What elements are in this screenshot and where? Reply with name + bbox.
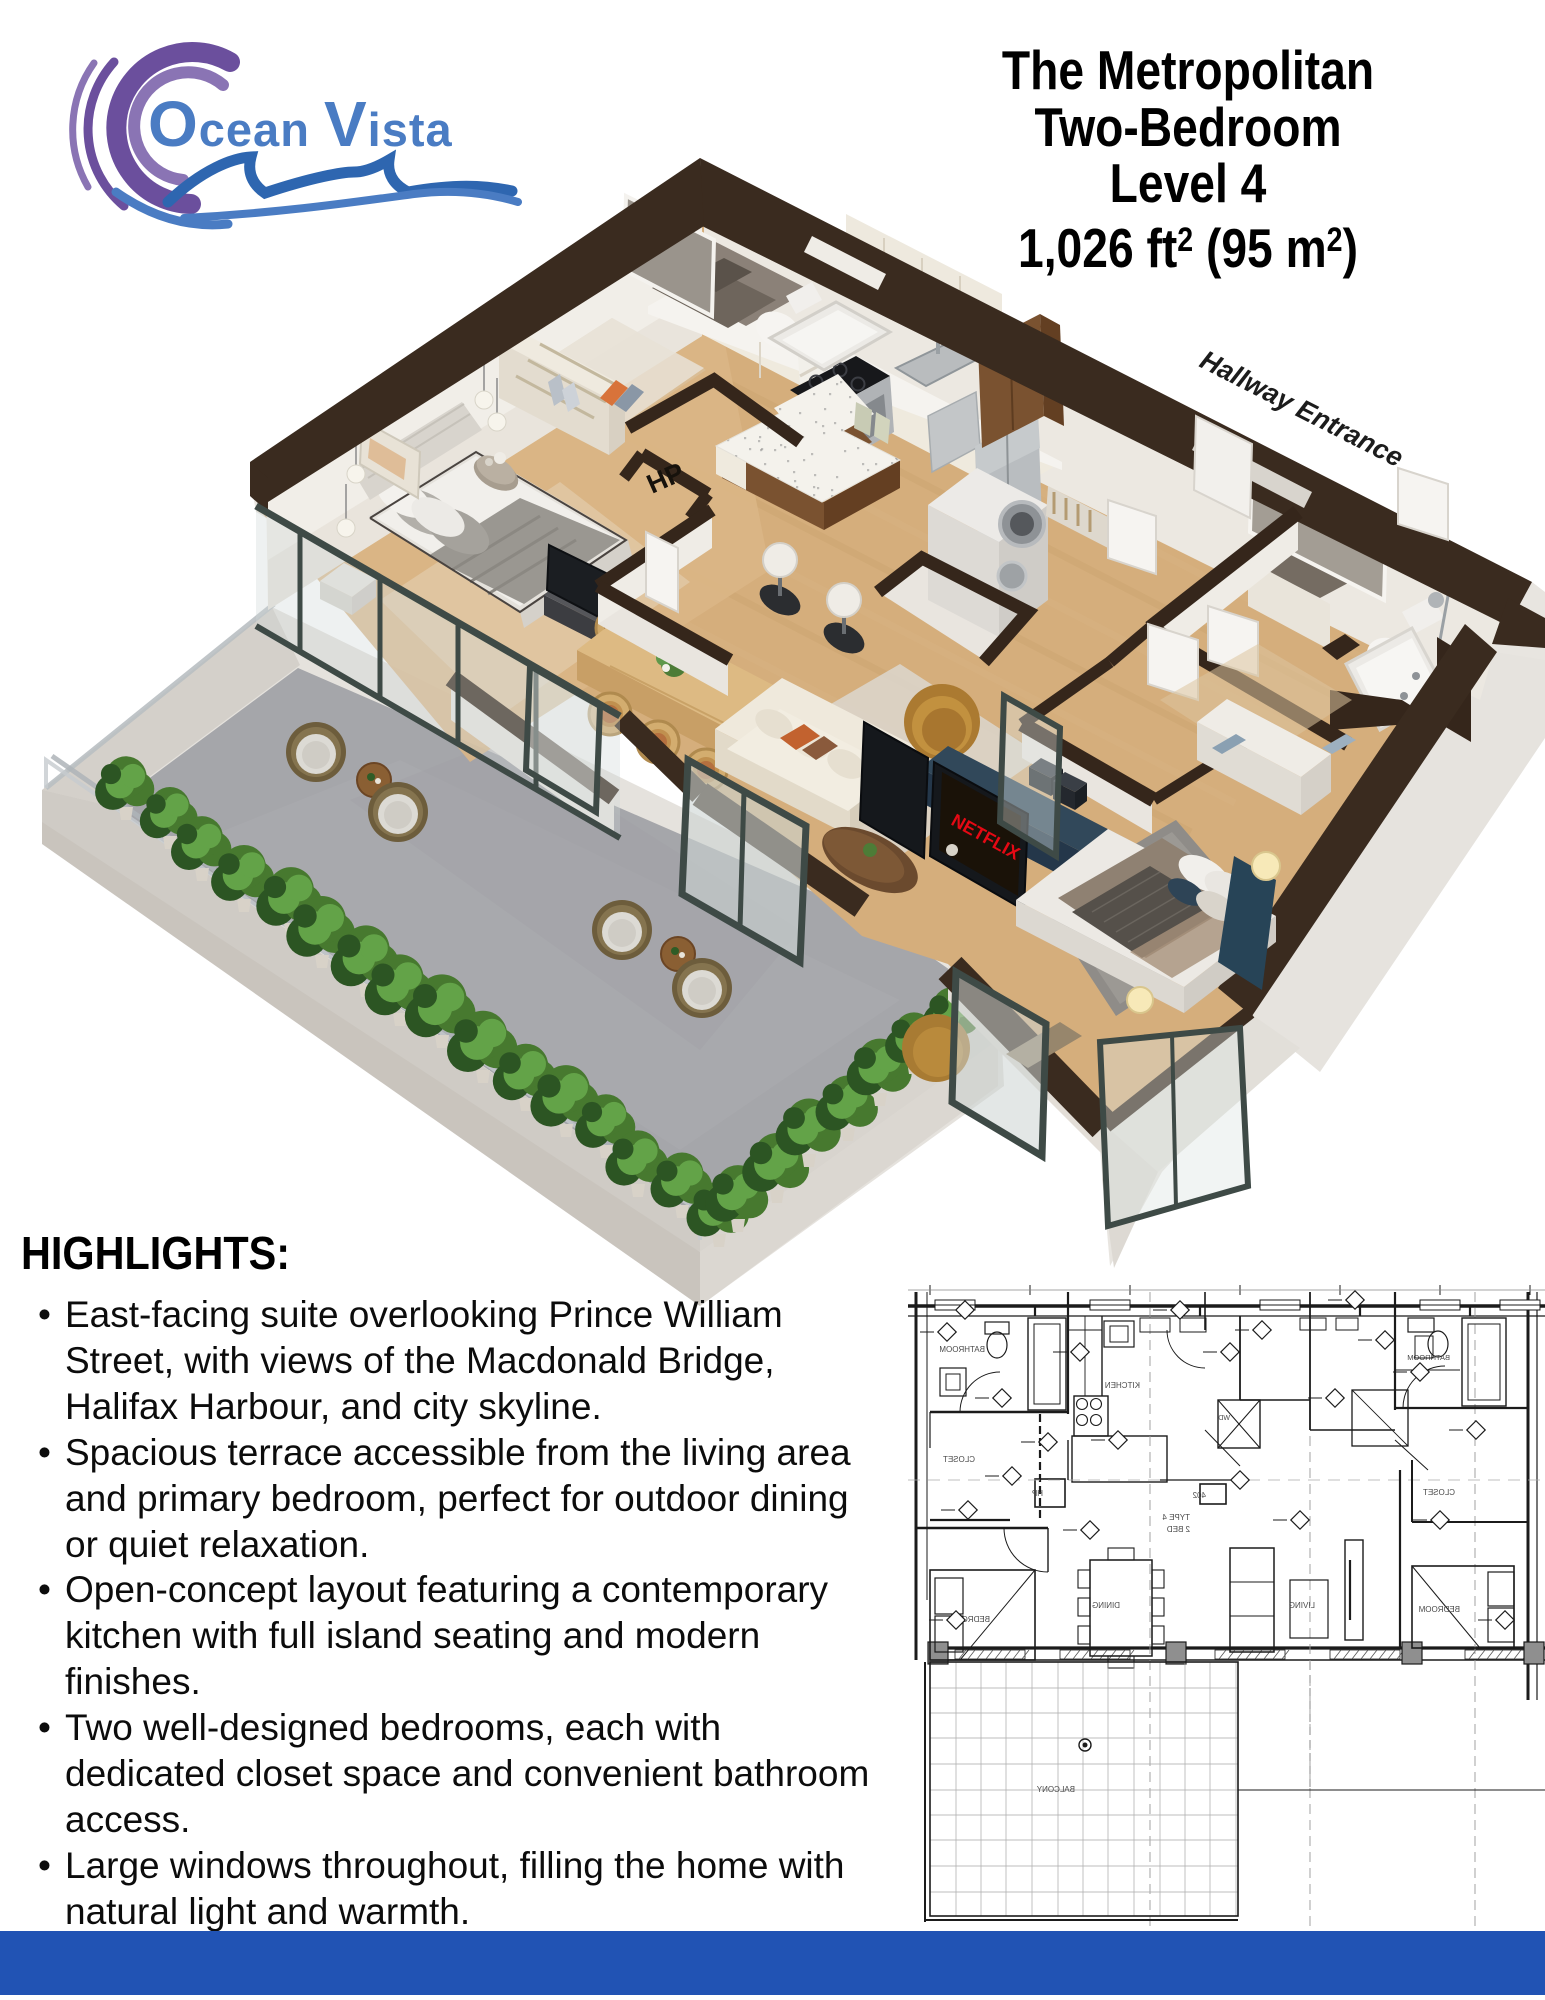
svg-text:WD: WD [1218, 1415, 1230, 1422]
svg-text:BATHROOM: BATHROOM [939, 1345, 985, 1354]
svg-text:CLOSET: CLOSET [1423, 1488, 1455, 1497]
svg-text:CLOSET: CLOSET [943, 1455, 975, 1464]
svg-text:LIVING: LIVING [1289, 1601, 1315, 1610]
svg-text:HP: HP [1032, 1489, 1043, 1498]
svg-text:BEDROOM: BEDROOM [1418, 1605, 1460, 1614]
svg-text:2 BED: 2 BED [1167, 1525, 1190, 1534]
svg-text:TYPE 4: TYPE 4 [1162, 1513, 1190, 1522]
svg-text:BALCONY: BALCONY [1036, 1785, 1075, 1794]
svg-text:402: 402 [1192, 1491, 1206, 1500]
svg-text:Ocean Vista: Ocean Vista [148, 88, 453, 160]
svg-text:KITCHEN: KITCHEN [1105, 1381, 1140, 1390]
svg-text:DINING: DINING [1092, 1601, 1120, 1610]
